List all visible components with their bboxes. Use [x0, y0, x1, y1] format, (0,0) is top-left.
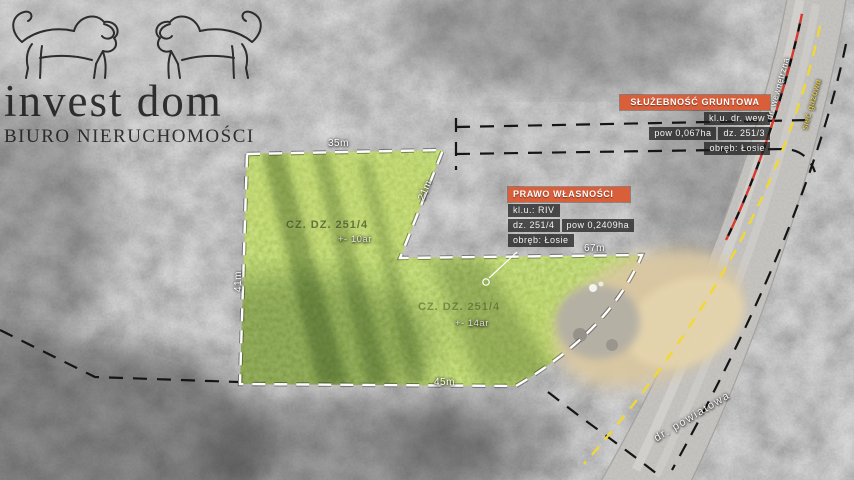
measurement-bottom-edge: 45m [434, 377, 455, 388]
logo-brand-text: invest dom [4, 79, 304, 124]
aerial-map-canvas: invest dom BIURO NIERUCHOMOŚCI SŁUŻEBNOŚ… [0, 0, 854, 480]
ownership-district: obręb: Łosie [508, 234, 574, 247]
easement-info-box: SŁUŻEBNOŚĆ GRUNTOWA kl.u. dr. wew pow 0,… [620, 95, 770, 155]
easement-district: obręb: Łosie [704, 142, 770, 155]
ownership-plot-number: dz. 251/4 [508, 219, 560, 232]
upper-parcel-label: CZ. DZ. 251/4 [286, 219, 368, 231]
easement-plot-number: dz. 251/3 [718, 127, 770, 140]
logo-lions-icon [4, 2, 270, 80]
logo-tagline-text: BIURO NIERUCHOMOŚCI [4, 126, 304, 148]
lower-parcel-area: +- 14ar [455, 318, 489, 329]
easement-title: SŁUŻEBNOŚĆ GRUNTOWA [620, 95, 770, 110]
white-object-marker [589, 284, 597, 292]
ownership-info-box: PRAWO WŁASNOŚCI kl.u.: RIV dz. 251/4 pow… [508, 187, 630, 247]
ownership-area: pow 0,2409ha [562, 219, 635, 232]
measurement-left-edge: 41m [233, 271, 244, 292]
upper-parcel-area: +- 10ar [338, 234, 372, 245]
measurement-middle-edge: 67m [584, 243, 605, 254]
agency-logo: invest dom BIURO NIERUCHOMOŚCI [4, 2, 304, 148]
ownership-land-class: kl.u.: RIV [508, 204, 560, 217]
easement-land-class: kl.u. dr. wew [704, 112, 770, 125]
easement-area: pow 0,067ha [649, 127, 716, 140]
lower-parcel-label: CZ. DZ. 251/4 [418, 301, 500, 313]
ownership-title: PRAWO WŁASNOŚCI [508, 187, 630, 202]
measurement-top-edge: 35m [328, 138, 349, 149]
